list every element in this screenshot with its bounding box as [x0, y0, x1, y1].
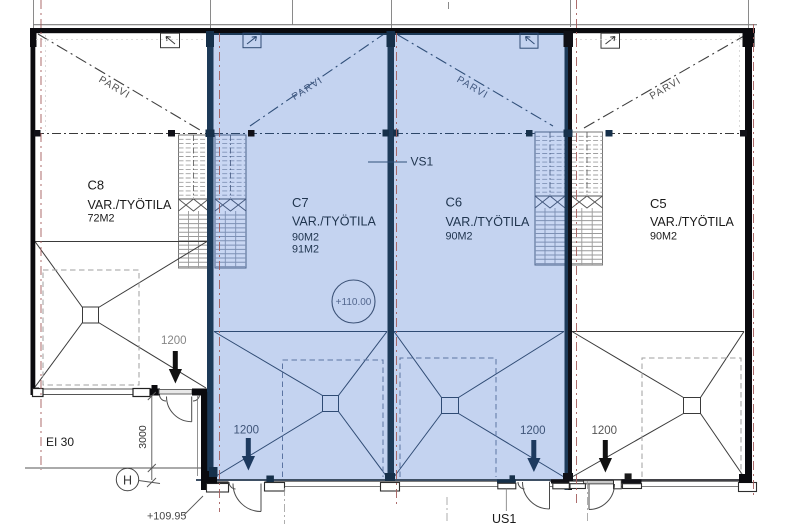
svg-text:H: H	[123, 474, 132, 488]
svg-text:EI 30: EI 30	[46, 435, 74, 449]
svg-text:VAR./TYÖTILA: VAR./TYÖTILA	[88, 198, 172, 212]
svg-text:1200: 1200	[234, 425, 260, 437]
svg-text:US1: US1	[492, 512, 516, 524]
svg-text:VAR./TYÖTILA: VAR./TYÖTILA	[446, 215, 530, 229]
svg-text:90M2: 90M2	[292, 231, 319, 243]
svg-text:C5: C5	[650, 196, 667, 211]
svg-text:3000: 3000	[137, 425, 149, 449]
svg-text:90M2: 90M2	[446, 231, 473, 243]
svg-text:72M2: 72M2	[88, 213, 115, 225]
svg-text:1200: 1200	[592, 425, 618, 437]
svg-text:1200: 1200	[161, 335, 187, 347]
svg-text:VS1: VS1	[411, 155, 434, 169]
svg-text:91M2: 91M2	[292, 243, 319, 255]
svg-text:C8: C8	[88, 178, 105, 193]
svg-text:VAR./TYÖTILA: VAR./TYÖTILA	[650, 215, 734, 229]
svg-text:+110.00: +110.00	[336, 297, 372, 308]
svg-text:VAR./TYÖTILA: VAR./TYÖTILA	[292, 215, 376, 229]
svg-text:1200: 1200	[520, 425, 546, 437]
svg-text:C7: C7	[292, 195, 309, 210]
svg-text:90M2: 90M2	[650, 231, 677, 243]
svg-text:C6: C6	[446, 194, 463, 209]
svg-text:+109.95: +109.95	[147, 511, 186, 523]
